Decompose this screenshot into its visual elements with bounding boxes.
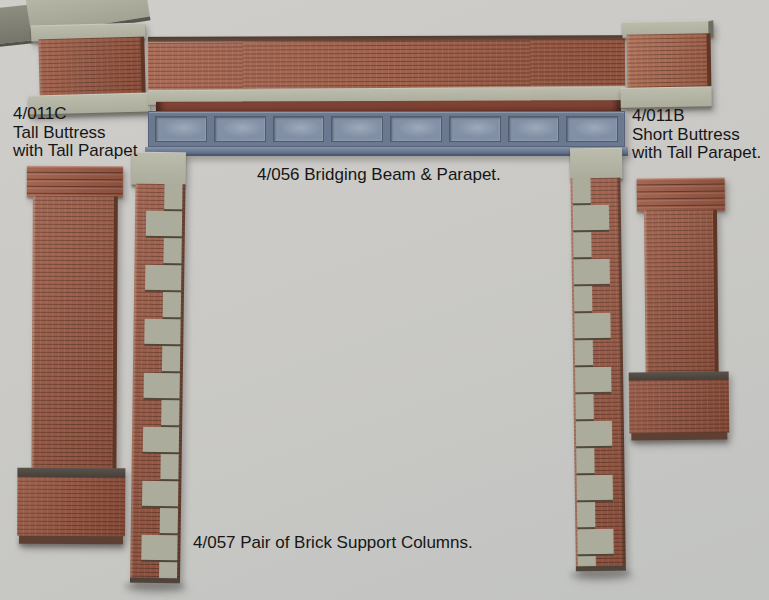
buttress-corbel-cap [27, 166, 123, 198]
stepped-quoins [572, 178, 613, 568]
support-column-left [126, 150, 188, 591]
base-foot [631, 433, 727, 441]
column-capstone [132, 152, 186, 187]
buttress-corbel-cap [637, 178, 725, 212]
product-photo: 4/011C Tall Buttress with Tall Parapet 4… [0, 0, 769, 600]
label-bridging-beam: 4/056 Bridging Beam & Parapet. [257, 166, 501, 185]
beam-panel [449, 116, 501, 142]
cast-shadow [124, 582, 186, 592]
label-line: Short Buttress [632, 126, 761, 145]
cast-shadow [570, 570, 632, 580]
buttress-shaft [31, 196, 117, 468]
buttress-shaft [644, 210, 719, 373]
beam-panel [273, 116, 325, 142]
beam-panel [566, 116, 618, 142]
label-line: Tall Buttress [13, 124, 137, 143]
column-capstone [570, 148, 622, 181]
beam-panel [508, 116, 560, 142]
support-column-right [568, 148, 630, 579]
label-line: with Tall Parapet [13, 142, 137, 161]
beam-panel [214, 116, 266, 142]
base-foot [19, 536, 123, 545]
parapet-brick-wall [148, 39, 625, 89]
brick-panel [38, 37, 145, 97]
buttress-base [629, 371, 730, 440]
beam-panel [155, 116, 207, 142]
label-short-buttress: 4/011B Short Buttress with Tall Parapet. [632, 107, 761, 163]
short-parapet-end-block [619, 17, 715, 111]
column-shaft [130, 184, 186, 581]
label-line: 4/011C [13, 105, 137, 124]
beam-panel [331, 116, 383, 142]
label-tall-buttress: 4/011C Tall Buttress with Tall Parapet [13, 105, 137, 161]
column-shaft [570, 178, 625, 569]
bridging-beam [148, 111, 625, 154]
stepped-quoins [141, 184, 183, 580]
beam-bottom-flange [145, 147, 628, 156]
label-support-columns: 4/057 Pair of Brick Support Columns. [193, 534, 473, 553]
buttress-base [17, 468, 125, 545]
brick-panel [626, 33, 711, 88]
beam-panel-row [148, 111, 625, 147]
tall-buttress [17, 166, 129, 547]
bridging-parapet [148, 35, 625, 105]
label-line: 4/011B [632, 107, 761, 126]
base-brick [17, 477, 125, 537]
tall-parapet-end-block [27, 18, 153, 115]
label-line: with Tall Parapet. [632, 144, 761, 163]
base-brick [629, 379, 730, 433]
short-buttress [627, 177, 732, 443]
beam-panel [390, 116, 442, 142]
